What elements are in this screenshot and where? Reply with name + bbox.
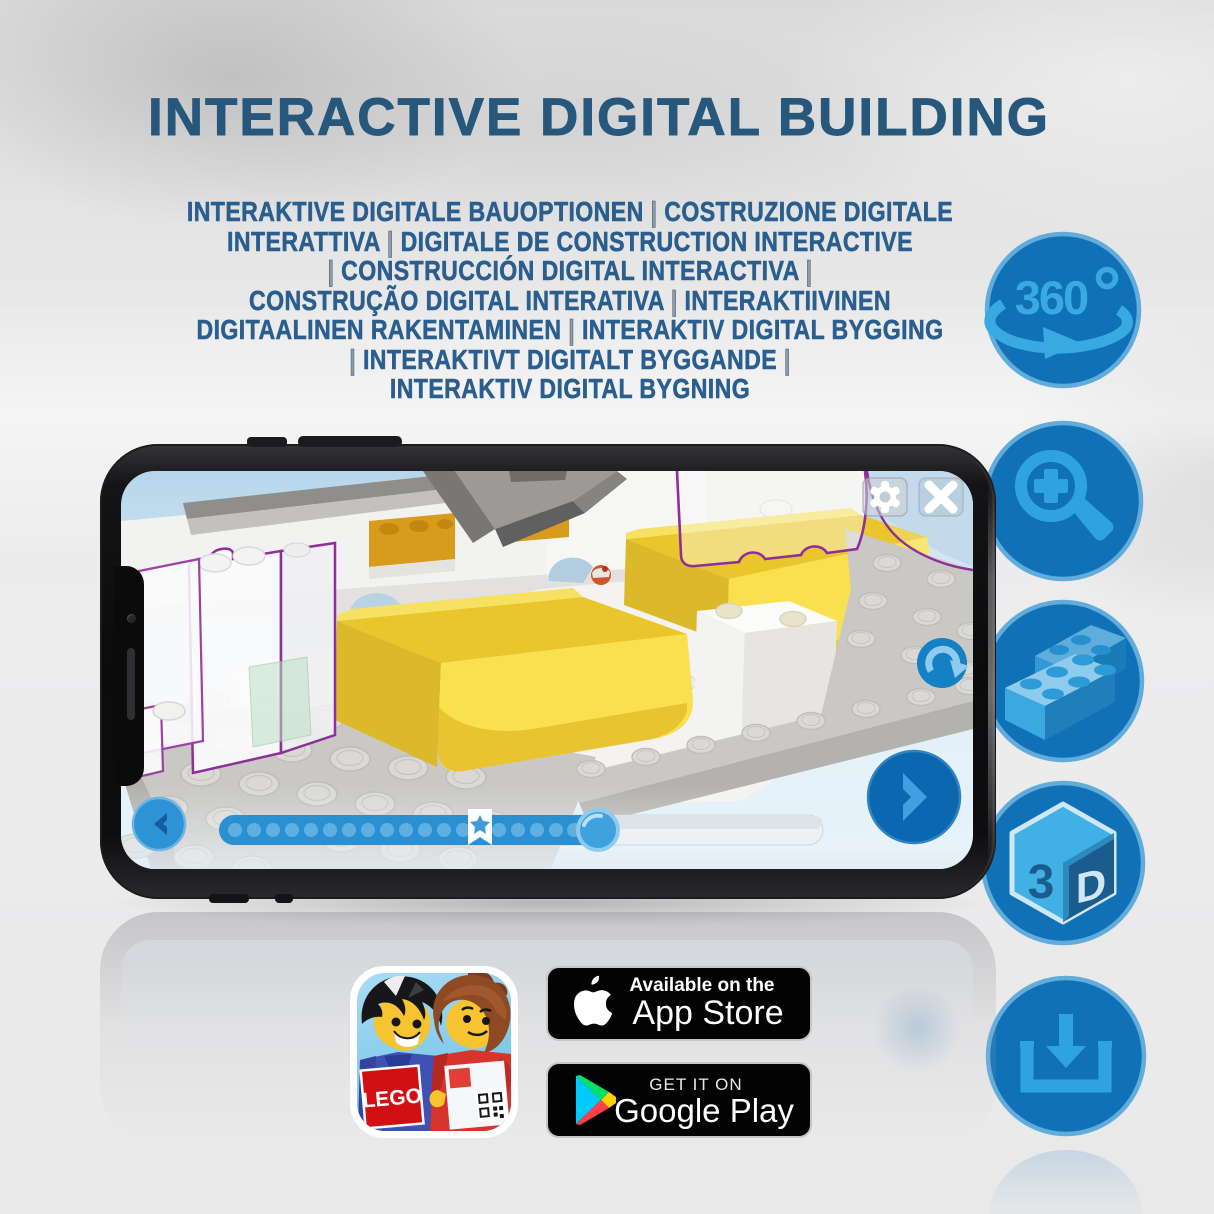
- svg-text:3: 3: [1028, 856, 1055, 909]
- svg-text:Available on the: Available on the: [630, 975, 775, 996]
- svg-text:D: D: [1076, 859, 1106, 914]
- svg-text:Google Play: Google Play: [614, 1092, 794, 1129]
- svg-text:360: 360: [1015, 271, 1088, 324]
- svg-text:App Store: App Store: [632, 994, 783, 1032]
